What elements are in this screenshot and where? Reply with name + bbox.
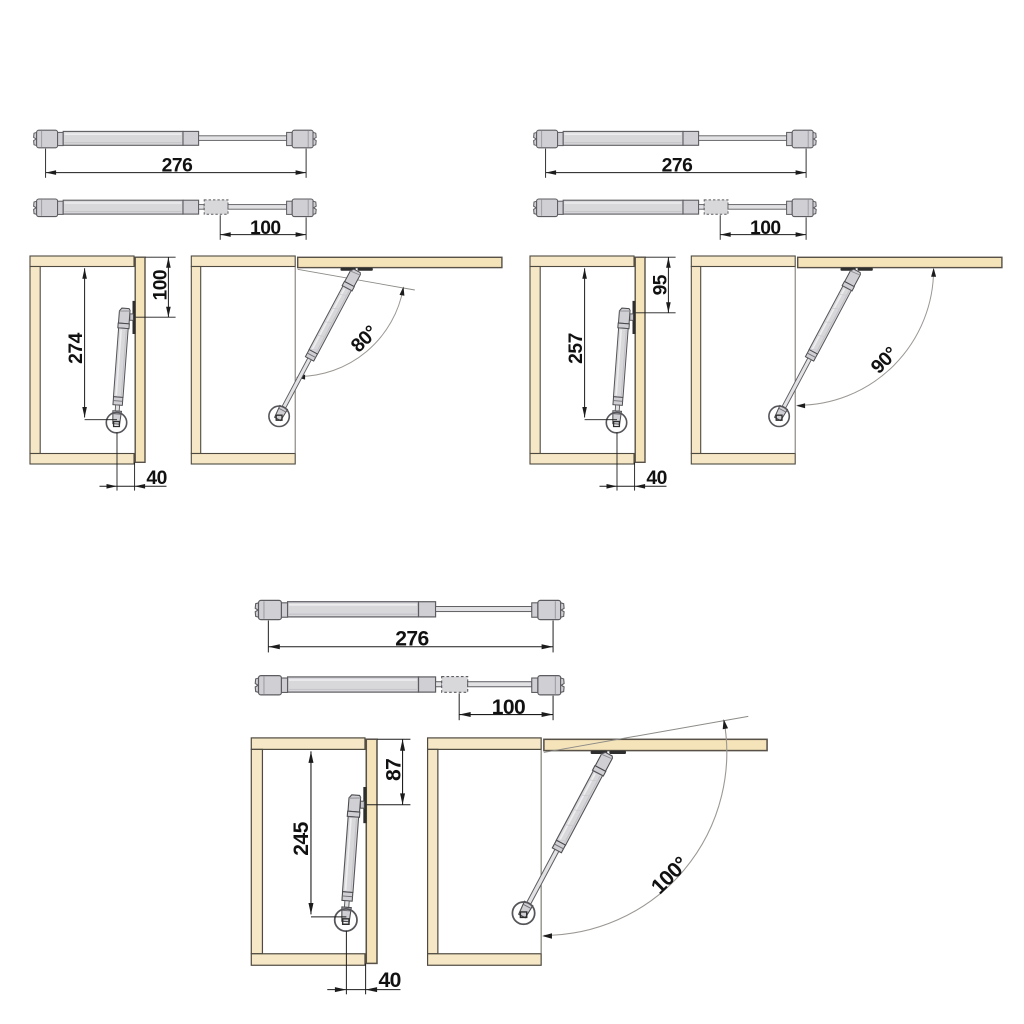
svg-text:95: 95 [651,274,672,295]
svg-text:40: 40 [646,468,666,489]
svg-text:40: 40 [378,969,400,992]
svg-text:87: 87 [383,759,406,781]
svg-text:100: 100 [250,218,281,239]
svg-text:245: 245 [290,821,313,855]
svg-text:40: 40 [146,468,166,489]
svg-text:100: 100 [750,218,781,239]
svg-text:274: 274 [66,332,87,363]
svg-text:100: 100 [151,270,172,301]
svg-text:257: 257 [566,333,587,364]
svg-text:100: 100 [492,696,526,719]
svg-text:276: 276 [395,627,429,650]
svg-text:276: 276 [162,155,193,176]
svg-text:276: 276 [662,155,693,176]
